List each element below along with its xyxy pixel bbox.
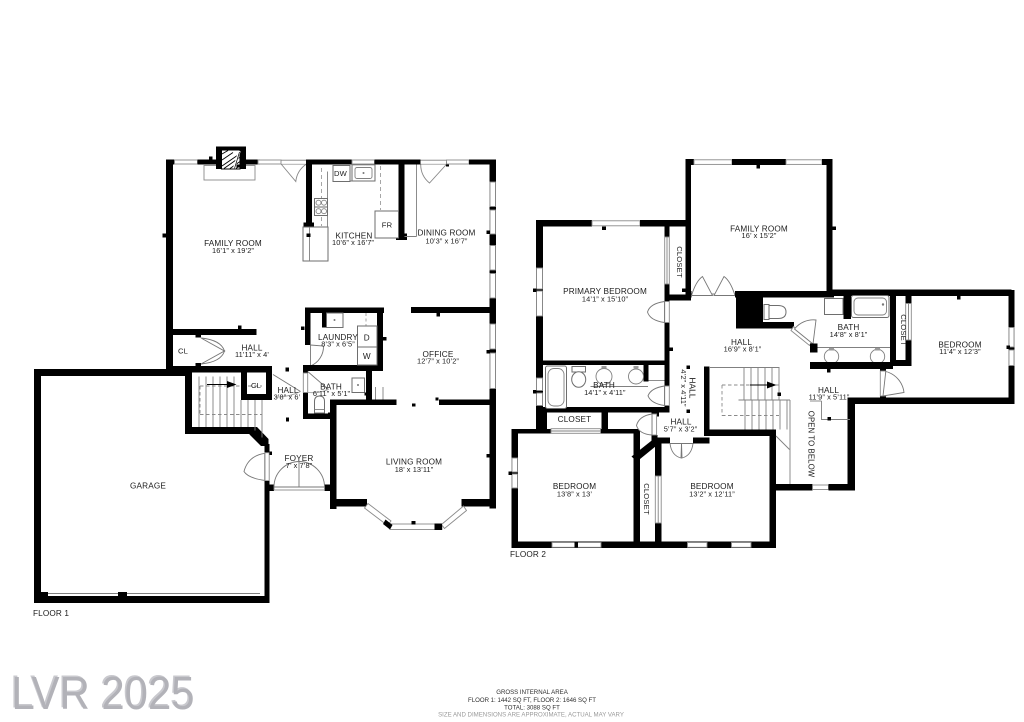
svg-text:16’ x 15’2”: 16’ x 15’2” [742,231,777,240]
svg-text:10’6” x 16’7”: 10’6” x 16’7” [332,238,374,247]
svg-text:16’9” x 8’1”: 16’9” x 8’1” [724,345,762,354]
svg-text:5’7” x 3’2”: 5’7” x 3’2” [664,424,698,433]
svg-text:FLOOR 1: 1442 SQ FT, FLOOR 2:: FLOOR 1: 1442 SQ FT, FLOOR 2: 1646 SQ FT [468,697,596,704]
svg-text:CL: CL [251,381,261,390]
svg-text:TOTAL: 3088 SQ FT: TOTAL: 3088 SQ FT [504,705,560,712]
svg-text:11’4” x 12’3”: 11’4” x 12’3” [939,347,981,356]
svg-text:13’8” x 13’: 13’8” x 13’ [557,489,592,498]
svg-text:14’1” x 4’11”: 14’1” x 4’11” [584,388,626,397]
svg-text:FR: FR [382,221,393,230]
svg-text:CLOSET: CLOSET [899,314,908,346]
svg-text:8’3” x 6’5”: 8’3” x 6’5” [321,340,355,349]
svg-text:FLOOR 2: FLOOR 2 [510,550,546,559]
svg-text:13’2” x 12’11”: 13’2” x 12’11” [689,489,735,498]
svg-text:10’3” x 16’7”: 10’3” x 16’7” [426,237,468,246]
svg-text:D: D [364,334,370,343]
svg-text:GARAGE: GARAGE [130,482,166,491]
svg-text:12’7” x 10’2”: 12’7” x 10’2” [417,357,459,366]
svg-text:16’1” x 19’2”: 16’1” x 19’2” [212,246,254,255]
svg-text:4’2” x 4’11”: 4’2” x 4’11” [679,369,688,407]
svg-text:W: W [363,352,371,361]
svg-text:LVR 2025: LVR 2025 [12,667,195,719]
svg-text:3’8” x 6’: 3’8” x 6’ [274,393,301,402]
svg-text:OPEN TO BELOW: OPEN TO BELOW [807,411,816,478]
svg-text:14’1” x 15’10”: 14’1” x 15’10” [582,295,629,304]
svg-text:DW: DW [334,169,348,178]
svg-text:CLOSET: CLOSET [675,246,684,278]
svg-text:11’9” x 5’11”: 11’9” x 5’11” [809,393,850,402]
svg-text:11’11” x 4’: 11’11” x 4’ [235,350,269,359]
svg-text:GROSS INTERNAL AREA: GROSS INTERNAL AREA [496,689,568,696]
svg-text:CL: CL [178,347,188,356]
svg-text:CLOSET: CLOSET [642,483,651,515]
svg-text:6’11” x 5’1”: 6’11” x 5’1” [313,389,351,398]
svg-text:18’ x 13’11”: 18’ x 13’11” [395,465,434,474]
svg-text:14’8” x 8’1”: 14’8” x 8’1” [830,330,868,339]
svg-text:FLOOR 1: FLOOR 1 [33,609,69,618]
svg-text:CLOSET: CLOSET [558,415,592,424]
svg-text:7’ x 7’8”: 7’ x 7’8” [286,461,313,470]
svg-text:SIZE AND DIMENSIONS ARE APPROX: SIZE AND DIMENSIONS ARE APPROXIMATE, ACT… [438,712,624,719]
